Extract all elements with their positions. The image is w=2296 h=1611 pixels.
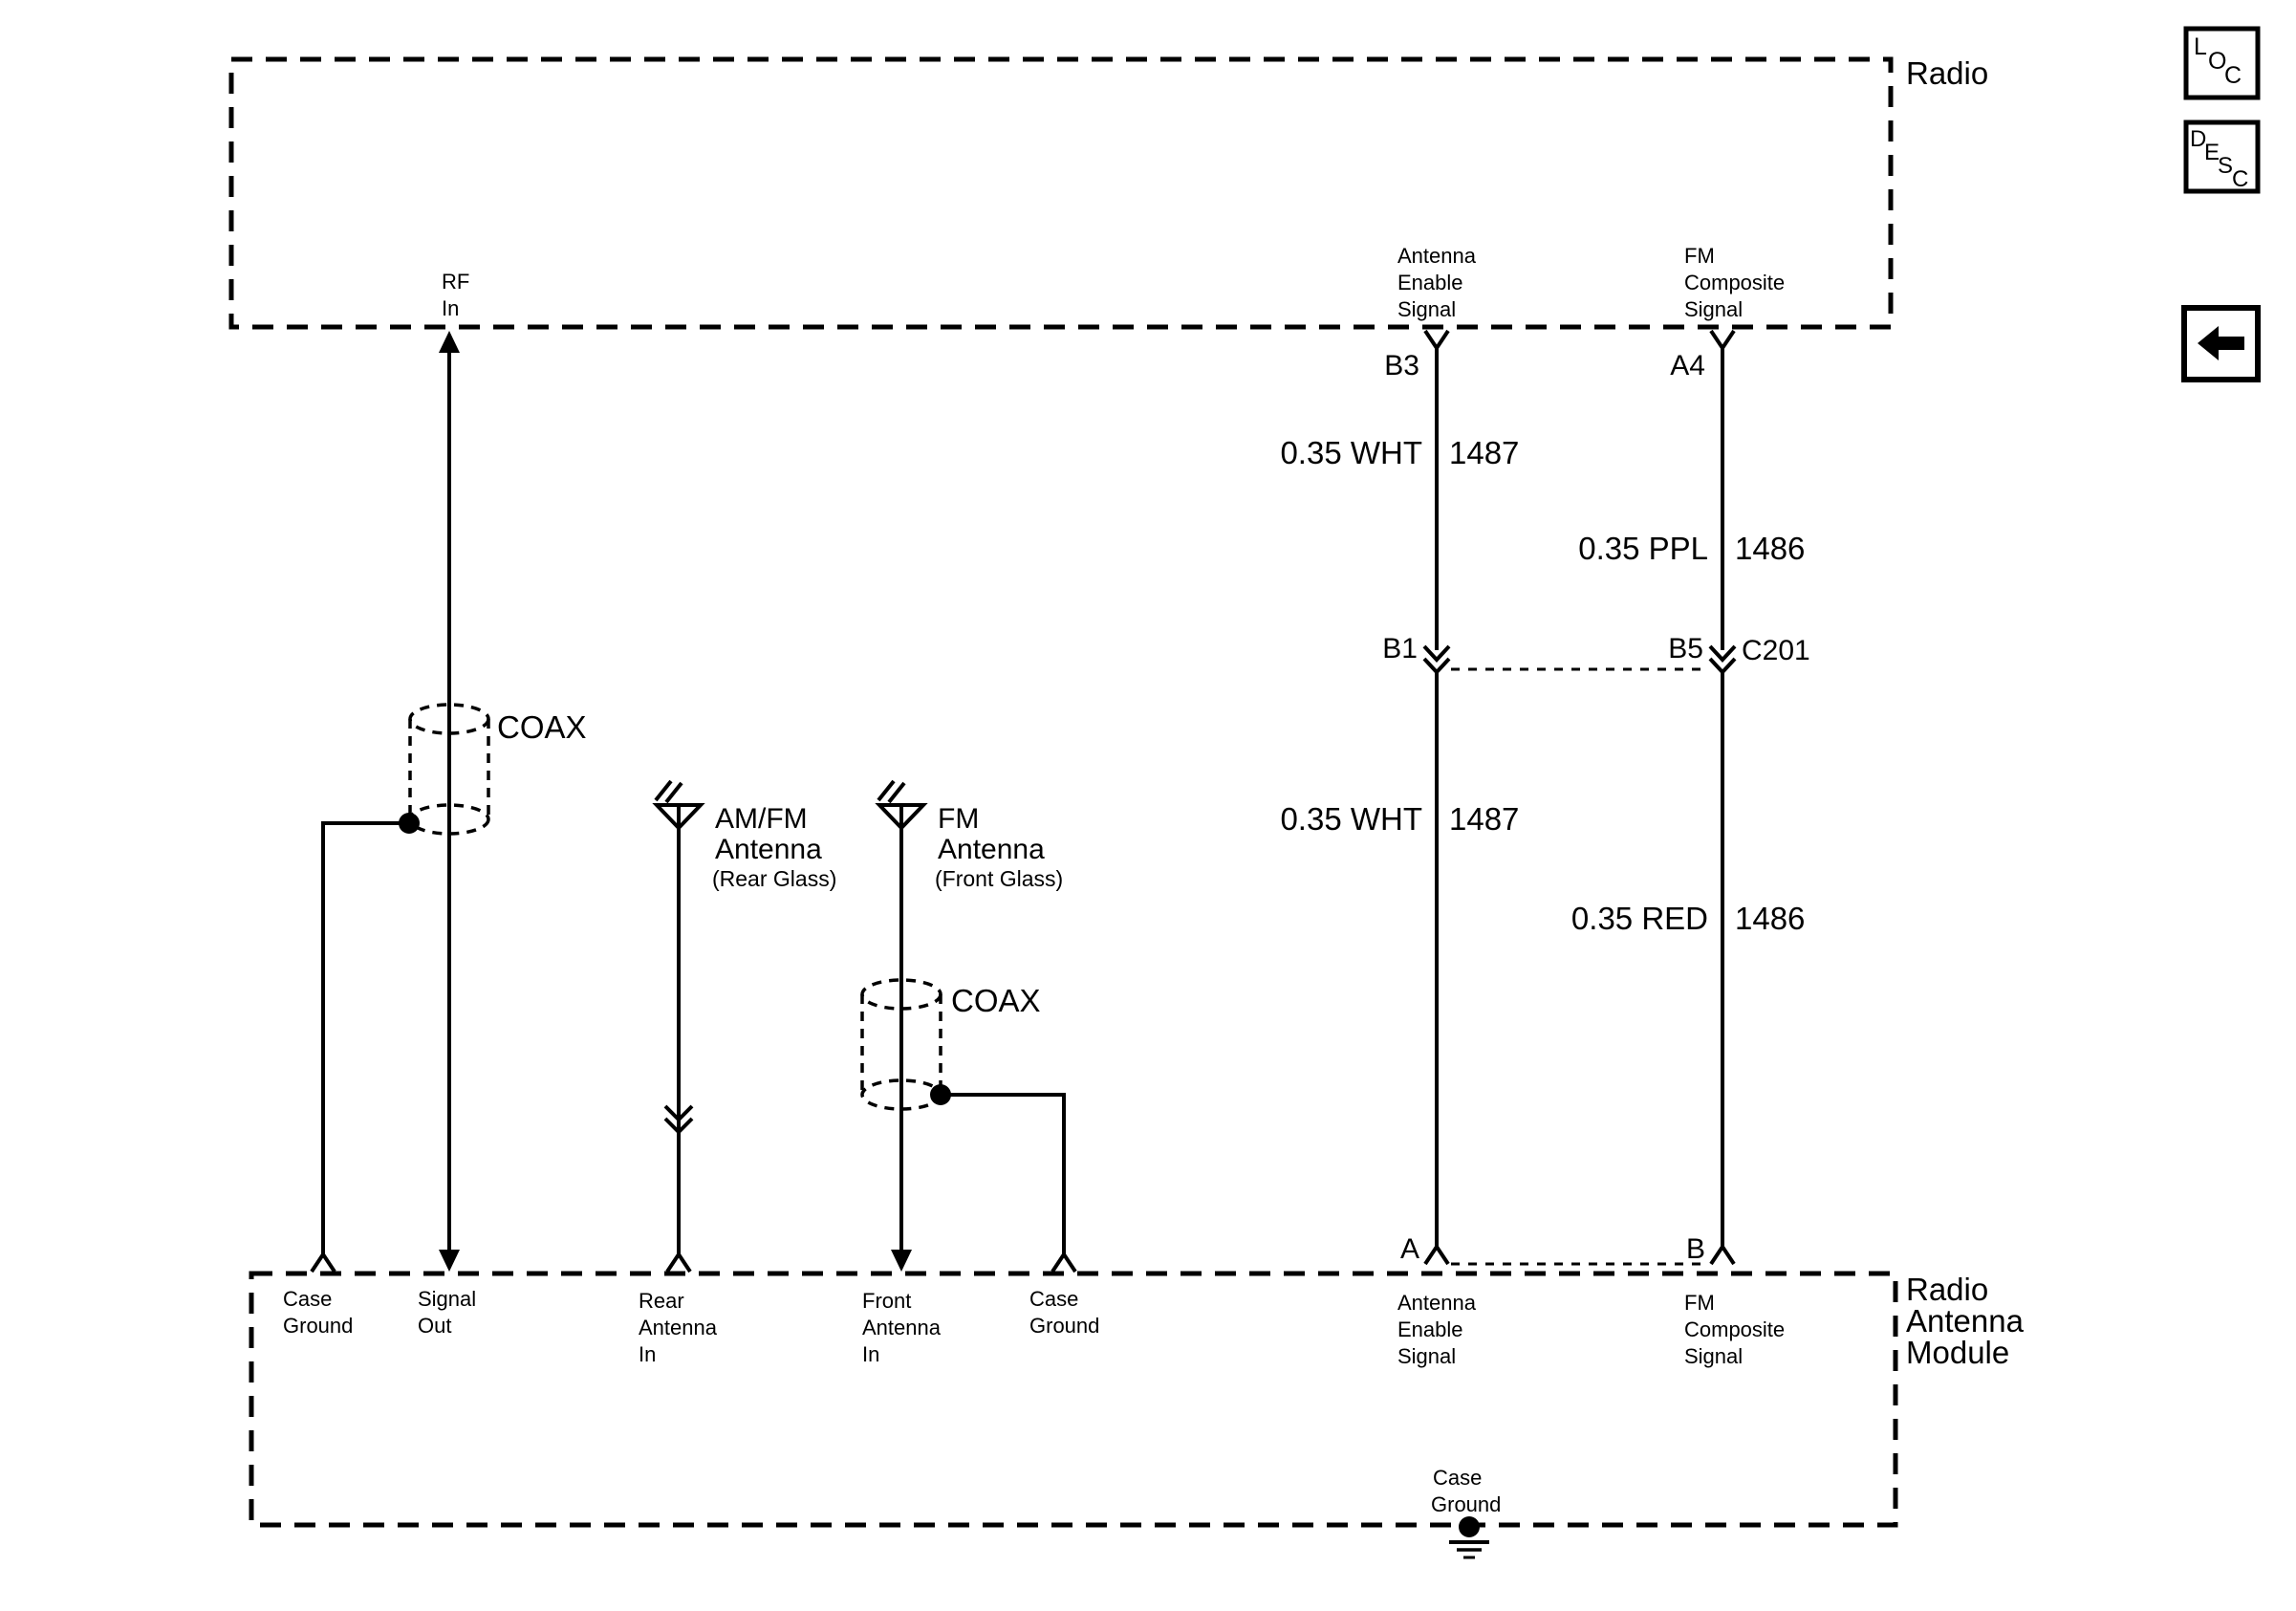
terminal-fork-icon xyxy=(667,1254,690,1272)
pin-b: B xyxy=(1686,1233,1705,1265)
radio-label: Radio xyxy=(1906,55,1988,91)
back-button[interactable] xyxy=(2184,308,2258,380)
terminal-fork-icon xyxy=(312,1254,335,1272)
inline-connector-icon xyxy=(1424,646,1449,672)
terminal-fork-icon xyxy=(1425,1247,1448,1264)
antenna-enable-label-2: Enable xyxy=(1397,271,1463,294)
down-arrow-icon xyxy=(439,1250,460,1272)
pin-b1: B1 xyxy=(1382,633,1418,664)
pin-label: Ground xyxy=(1431,1492,1501,1516)
pin-label: Ground xyxy=(1029,1314,1099,1338)
rear-antenna: AM/FM Antenna (Rear Glass) xyxy=(656,781,836,1272)
radio-box-outline xyxy=(231,59,1891,327)
pin-label: Case xyxy=(283,1287,332,1311)
rear-antenna-label-2: Antenna xyxy=(715,834,822,865)
coax-label-front: COAX xyxy=(951,983,1041,1018)
module-label-1: Radio xyxy=(1906,1272,1988,1307)
module-case-ground-bottom: Case Ground xyxy=(1431,1466,1501,1557)
radio-fm-composite-pin: FM Composite Signal A4 xyxy=(1670,244,1785,381)
pin-a: A xyxy=(1400,1233,1419,1265)
fm-composite-label-1: FM xyxy=(1684,244,1715,268)
pin-label: Composite xyxy=(1684,1317,1785,1341)
antenna-enable-label-1: Antenna xyxy=(1397,244,1477,268)
module-label-2: Antenna xyxy=(1906,1303,2025,1339)
down-arrow-icon xyxy=(891,1250,912,1272)
module-pin-case-ground-left: Case Ground xyxy=(283,1287,353,1338)
case-ground-mid-wire xyxy=(930,1084,1075,1272)
rf-in-pin: RF In xyxy=(439,270,469,353)
pin-label: In xyxy=(639,1342,656,1366)
wire-spec: 0.35 WHT xyxy=(1280,801,1422,837)
wiring-diagram: Radio L O C D E S C RF In Antenna Enable… xyxy=(0,0,2296,1611)
desc-letter-4: C xyxy=(2232,166,2248,192)
pin-label: Out xyxy=(418,1314,451,1338)
pin-label: In xyxy=(862,1342,879,1366)
front-antenna: FM Antenna (Front Glass) xyxy=(878,781,1063,1272)
antenna-enable-wire: 0.35 WHT 1487 0.35 WHT 1487 xyxy=(1280,348,1519,1264)
fm-composite-wire: 0.35 PPL 1486 0.35 RED 1486 xyxy=(1571,348,1806,1264)
pin-label: Front xyxy=(862,1289,911,1313)
module-pin-antenna-enable: Antenna Enable Signal xyxy=(1397,1291,1477,1368)
module-pin-case-ground-mid: Case Ground xyxy=(1029,1287,1099,1338)
rf-in-label-2: In xyxy=(442,296,459,320)
pin-label: Case xyxy=(1029,1287,1078,1311)
loc-letter-3: C xyxy=(2224,62,2242,89)
terminal-fork-icon xyxy=(1425,331,1448,348)
loc-button[interactable]: L O C xyxy=(2186,29,2258,98)
connector-c201-label: C201 xyxy=(1742,635,1810,666)
coax-label-rf: COAX xyxy=(497,709,587,745)
rear-antenna-sublabel: (Rear Glass) xyxy=(712,866,836,891)
wire-spec: 0.35 WHT xyxy=(1280,435,1422,470)
module-pin-rear-antenna-in: Rear Antenna In xyxy=(639,1289,718,1366)
pin-label: Signal xyxy=(418,1287,476,1311)
pin-label: Antenna xyxy=(862,1316,942,1339)
desc-letter-3: S xyxy=(2218,153,2233,179)
pin-label: Rear xyxy=(639,1289,684,1313)
pin-label: Case xyxy=(1433,1466,1482,1490)
wire-spec: 0.35 PPL xyxy=(1578,531,1708,566)
module-pin-signal-out: Signal Out xyxy=(418,1287,476,1338)
terminal-fork-icon xyxy=(1711,331,1734,348)
terminal-fork-icon xyxy=(1711,1247,1734,1264)
loc-letter-1: L xyxy=(2194,33,2207,60)
wire-spec: 0.35 RED xyxy=(1571,901,1708,936)
wire-circuit: 1487 xyxy=(1449,801,1519,837)
front-antenna-label-2: Antenna xyxy=(938,834,1045,865)
module-pin-front-antenna-in: Front Antenna In xyxy=(862,1289,942,1366)
coax-shield-rf: COAX xyxy=(410,705,587,834)
wire-circuit: 1487 xyxy=(1449,435,1519,470)
wire-circuit: 1486 xyxy=(1735,531,1805,566)
module-box-outline xyxy=(251,1274,1895,1525)
pin-label: FM xyxy=(1684,1291,1715,1315)
case-ground-left-wire xyxy=(312,813,420,1272)
front-antenna-label-1: FM xyxy=(938,803,979,835)
pin-label: Antenna xyxy=(639,1316,718,1339)
fm-composite-label-2: Composite xyxy=(1684,271,1785,294)
module-label-3: Module xyxy=(1906,1335,2009,1370)
pin-label: Signal xyxy=(1397,1344,1456,1368)
pin-b5: B5 xyxy=(1668,633,1703,664)
chassis-ground-icon xyxy=(1449,1516,1489,1557)
pin-label: Enable xyxy=(1397,1317,1463,1341)
front-antenna-sublabel: (Front Glass) xyxy=(935,866,1063,891)
module-pin-fm-composite: FM Composite Signal xyxy=(1684,1291,1785,1368)
rf-signal-wire xyxy=(439,344,460,1272)
pin-label: Signal xyxy=(1684,1344,1743,1368)
terminal-fork-icon xyxy=(1052,1254,1075,1272)
wire-circuit: 1486 xyxy=(1735,901,1805,936)
fm-composite-label-3: Signal xyxy=(1684,297,1743,321)
inline-connector-icon xyxy=(1710,646,1735,672)
radio-antenna-enable-pin: Antenna Enable Signal B3 xyxy=(1384,244,1476,381)
rf-in-label-1: RF xyxy=(442,270,469,294)
pin-b3: B3 xyxy=(1384,350,1419,381)
pin-label: Ground xyxy=(283,1314,353,1338)
radio-antenna-module-box: Radio Antenna Module xyxy=(251,1272,2025,1525)
pin-label: Antenna xyxy=(1397,1291,1477,1315)
rear-antenna-label-1: AM/FM xyxy=(715,803,808,835)
coax-shield-front: COAX xyxy=(862,980,1041,1109)
antenna-enable-label-3: Signal xyxy=(1397,297,1456,321)
pin-a4: A4 xyxy=(1670,350,1705,381)
desc-button[interactable]: D E S C xyxy=(2186,122,2258,192)
